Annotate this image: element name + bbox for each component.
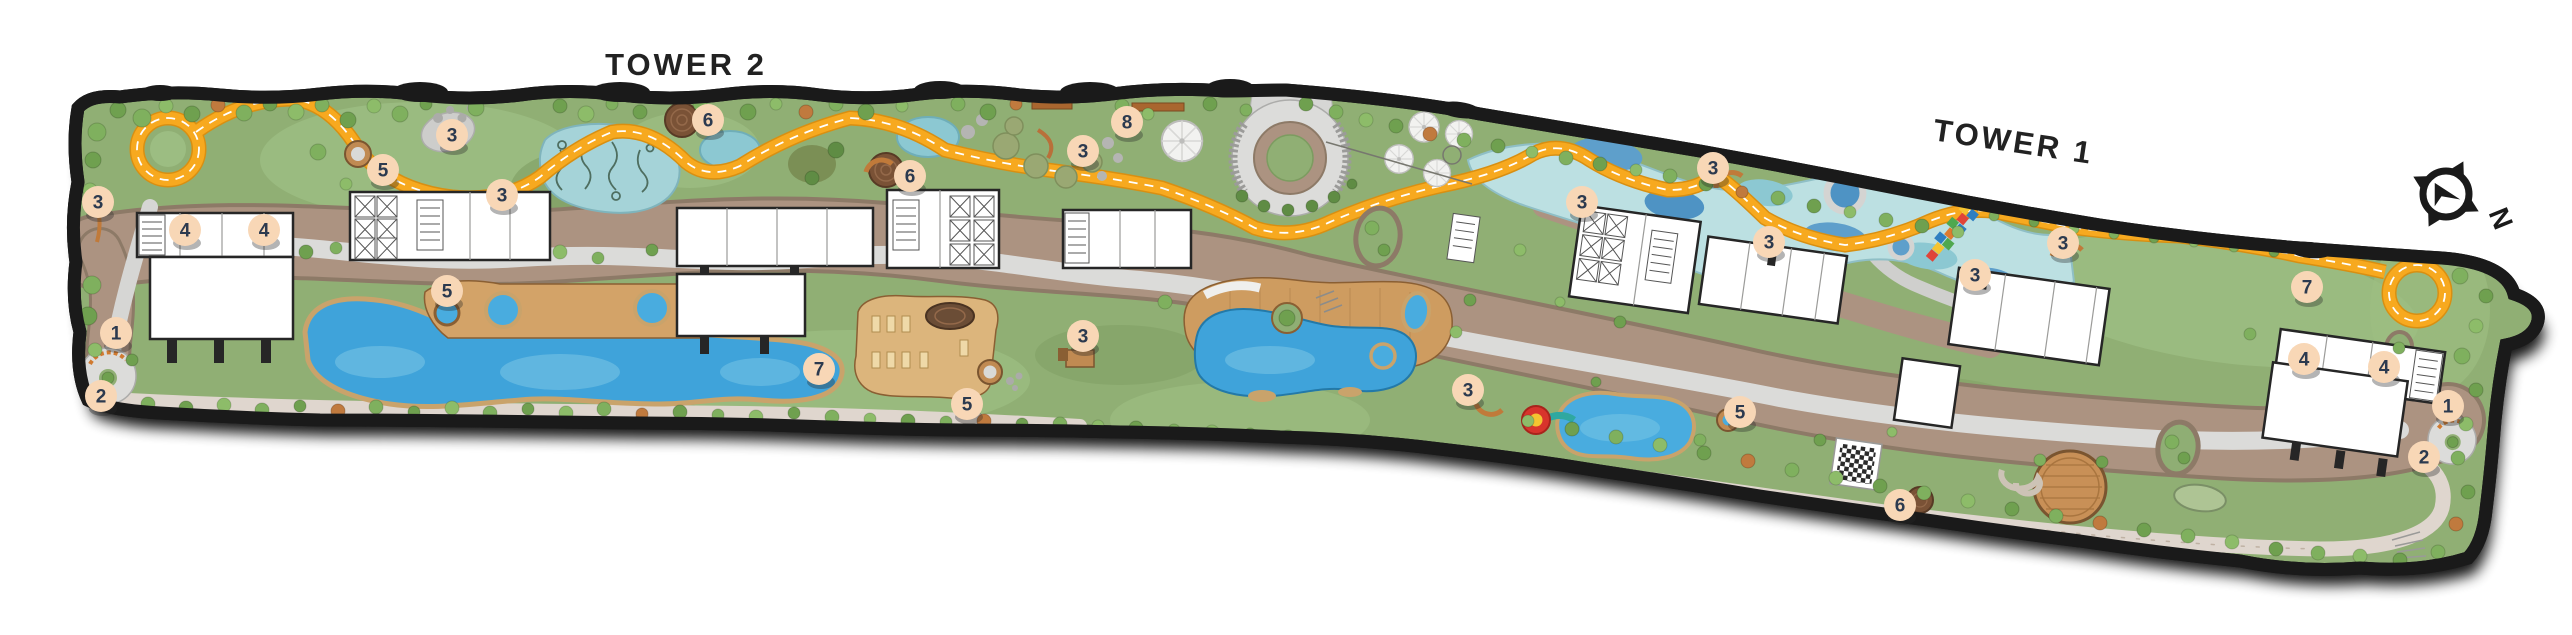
svg-text:3: 3 (93, 193, 104, 214)
site-plan-svg: TOWER 2 TOWER 1 N 3441235356638375333333… (0, 0, 2572, 635)
plunge-pool (1371, 344, 1395, 368)
map-marker-5[interactable]: 5 (951, 388, 983, 424)
svg-text:6: 6 (703, 111, 714, 132)
map-marker-3[interactable]: 3 (82, 186, 114, 222)
map-marker-7[interactable]: 7 (803, 353, 835, 389)
map-marker-4[interactable]: 4 (2288, 343, 2320, 379)
svg-text:3: 3 (1764, 233, 1775, 254)
svg-text:3: 3 (1970, 266, 1981, 287)
svg-text:5: 5 (1735, 403, 1746, 424)
svg-text:3: 3 (447, 126, 458, 147)
amenity-hall (1063, 210, 1191, 268)
map-marker-8[interactable]: 8 (1111, 106, 1143, 142)
svg-text:2: 2 (96, 387, 107, 408)
svg-text:8: 8 (1122, 113, 1133, 134)
tower2-label: TOWER 2 (605, 47, 767, 82)
svg-text:6: 6 (905, 167, 916, 188)
map-marker-3[interactable]: 3 (486, 179, 518, 215)
svg-text:5: 5 (962, 395, 973, 416)
svg-text:5: 5 (442, 282, 453, 303)
svg-text:3: 3 (1078, 327, 1089, 348)
map-marker-6[interactable]: 6 (894, 160, 926, 196)
map-marker-5[interactable]: 5 (1724, 396, 1756, 432)
svg-text:3: 3 (2058, 234, 2069, 255)
map-marker-3[interactable]: 3 (1067, 320, 1099, 356)
svg-text:4: 4 (2379, 358, 2390, 379)
map-marker-3[interactable]: 3 (436, 119, 468, 155)
map-marker-1[interactable]: 1 (2432, 390, 2464, 426)
svg-text:5: 5 (378, 161, 389, 182)
map-marker-3[interactable]: 3 (1959, 259, 1991, 295)
pergola-bench (1132, 103, 1184, 111)
map-marker-6[interactable]: 6 (692, 104, 724, 140)
map-marker-3[interactable]: 3 (1697, 152, 1729, 188)
garden-pavilion (1894, 358, 1960, 427)
stair-pavilion (1447, 213, 1480, 262)
map-marker-3[interactable]: 3 (1566, 186, 1598, 222)
svg-text:7: 7 (814, 360, 825, 381)
map-marker-4[interactable]: 4 (248, 214, 280, 250)
svg-text:1: 1 (2443, 397, 2454, 418)
map-marker-1[interactable]: 1 (100, 317, 132, 353)
round-pool (635, 291, 669, 325)
map-marker-5[interactable]: 5 (431, 275, 463, 311)
map-marker-4[interactable]: 4 (2368, 351, 2400, 387)
map-marker-6[interactable]: 6 (1884, 489, 1916, 525)
svg-text:3: 3 (1708, 159, 1719, 180)
map-marker-2[interactable]: 2 (85, 380, 117, 416)
map-marker-3[interactable]: 3 (2047, 227, 2079, 263)
svg-text:1: 1 (111, 324, 122, 345)
hammock-net (926, 303, 974, 329)
svg-text:3: 3 (1577, 193, 1588, 214)
svg-text:3: 3 (1463, 381, 1474, 402)
svg-text:3: 3 (1078, 142, 1089, 163)
tower2-core-east (887, 190, 999, 268)
compass-icon: N (2396, 144, 2519, 244)
svg-text:4: 4 (2299, 350, 2310, 371)
map-marker-3[interactable]: 3 (1452, 374, 1484, 410)
bamboo-deck (855, 296, 998, 399)
map-marker-2[interactable]: 2 (2408, 441, 2440, 477)
map-marker-3[interactable]: 3 (1753, 226, 1785, 262)
map-marker-5[interactable]: 5 (367, 154, 399, 190)
svg-text:3: 3 (497, 186, 508, 207)
tower1-label: TOWER 1 (1931, 112, 2096, 171)
svg-text:4: 4 (259, 221, 270, 242)
map-marker-7[interactable]: 7 (2291, 271, 2323, 307)
tower2-core-west (350, 192, 550, 260)
compass-north-label: N (2483, 203, 2519, 233)
svg-text:6: 6 (1895, 496, 1906, 517)
svg-text:7: 7 (2302, 278, 2313, 299)
svg-text:2: 2 (2419, 448, 2430, 469)
svg-text:4: 4 (180, 221, 191, 242)
round-pool (486, 293, 520, 327)
masterplan-canvas: TOWER 2 TOWER 1 N 3441235356638375333333… (0, 0, 2572, 635)
map-marker-4[interactable]: 4 (169, 214, 201, 250)
map-marker-3[interactable]: 3 (1067, 135, 1099, 171)
